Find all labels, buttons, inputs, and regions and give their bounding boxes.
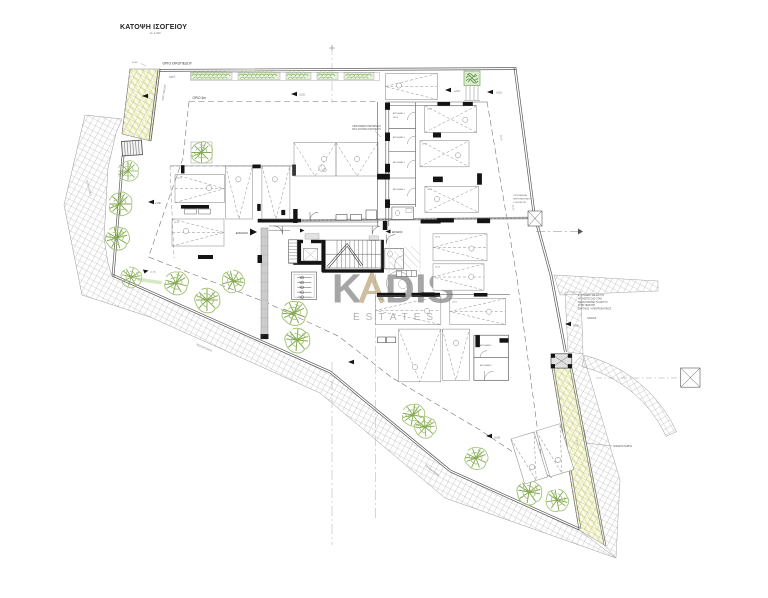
- svg-text:ΑΠΟΘΗΚΗ 2: ΑΠΟΘΗΚΗ 2: [393, 136, 406, 139]
- svg-text:18.00: 18.00: [393, 117, 399, 119]
- svg-text:18.00: 18.00: [427, 189, 433, 191]
- svg-text:ΟΛΟΚΛΗΡΩΘΕΙ ΤΟ ΔΙΚΤΥΟ: ΟΛΟΚΛΗΡΩΘΕΙ ΤΟ ΔΙΚΤΥΟ: [578, 301, 608, 304]
- svg-text:ΑΠΟΘΗΚΗ 5: ΑΠΟΘΗΚΗ 5: [480, 344, 493, 347]
- svg-text:ΟΡΙΟ 3m: ΟΡΙΟ 3m: [193, 96, 207, 100]
- svg-text:ΑΠΟΘΗΚΗ 3: ΑΠΟΘΗΚΗ 3: [393, 161, 406, 164]
- svg-text:ΕΙΣΟΔΟΣ: ΕΙΣΟΔΟΣ: [236, 231, 248, 235]
- svg-text:+2.10: +2.10: [496, 93, 503, 95]
- svg-text:ΣΗΠΤΙΚΟΣ / ΑΠΟΡΡΟΦΗΤΙΚΟΣ: ΣΗΠΤΙΚΟΣ / ΑΠΟΡΡΟΦΗΤΙΚΟΣ: [578, 308, 612, 311]
- svg-text:ΣΥΝΟΡΑ ΟΙΚ.: ΣΥΝΟΡΑ ΟΙΚ.: [513, 201, 527, 204]
- svg-text:ΑΝΟΔΟΣ ΡΑΜΠΑ: ΑΝΟΔΟΣ ΡΑΜΠΑ: [613, 445, 632, 448]
- svg-text:+0.90: +0.90: [573, 326, 580, 328]
- svg-text:18.00: 18.00: [174, 222, 180, 224]
- svg-text:ΑΠΟΘΗΚΗ 6: ΑΠΟΘΗΚΗ 6: [480, 364, 493, 367]
- svg-text:18.00: 18.00: [422, 144, 428, 146]
- svg-text:+0.35: +0.35: [494, 438, 501, 440]
- svg-text:1. ΣΥΝΔΕΣΗ ΜΕ ΔΙΚΤΥΟ: 1. ΣΥΝΔΕΣΗ ΜΕ ΔΙΚΤΥΟ: [578, 294, 604, 297]
- svg-text:ΥΦΙΣΤΑΜΕΝΗ: ΥΦΙΣΤΑΜΕΝΗ: [513, 194, 528, 197]
- svg-text:ΑΠΟΧΕΤΕΥΣΗΣ ΟΤΑΝ: ΑΠΟΧΕΤΕΥΣΗΣ ΟΤΑΝ: [578, 297, 602, 300]
- svg-text:18.00: 18.00: [452, 301, 458, 303]
- svg-text:18.00: 18.00: [435, 267, 441, 269]
- svg-text:ΛΑΚΚΟΣ: ΛΑΚΚΟΣ: [587, 317, 597, 320]
- svg-text:ΑΠΟ ΣΥΝΟΡΑ ΟΙΚΟΠΕΔΟΥ: ΑΠΟ ΣΥΝΟΡΑ ΟΙΚΟΠΕΔΟΥ: [352, 128, 381, 131]
- svg-text:18.00: 18.00: [427, 109, 433, 111]
- svg-text:ΑΠΟΘΗΚΗ 4: ΑΠΟΘΗΚΗ 4: [393, 188, 406, 191]
- svg-text:+1.80: +1.80: [155, 203, 162, 205]
- svg-text:+1.50: +1.50: [150, 272, 156, 274]
- svg-text:18.00: 18.00: [435, 237, 441, 239]
- svg-text:ΚΑΤΟΨΗ ΙΣΟΓΕΙΟΥ: ΚΑΤΟΨΗ ΙΣΟΓΕΙΟΥ: [120, 24, 187, 31]
- svg-text:ΟΡΙΟ ΟΙΚΟΠΕΔΟΥ: ΟΡΙΟ ΟΙΚΟΠΕΔΟΥ: [163, 62, 193, 66]
- svg-text:ΕΙΣΟΔΟΣ: ΕΙΣΟΔΟΣ: [392, 231, 403, 234]
- svg-text:ΑΠΟΘΗΚΗ 1: ΑΠΟΘΗΚΗ 1: [393, 112, 406, 115]
- svg-text:ΣΤΗΝ ΠΕΡΙΟΧΗ: ΣΤΗΝ ΠΕΡΙΟΧΗ: [578, 305, 595, 307]
- svg-text:κλ. 1:100: κλ. 1:100: [150, 31, 161, 35]
- svg-text:+2.10: +2.10: [454, 91, 461, 93]
- svg-text:30.00: 30.00: [132, 62, 138, 64]
- svg-text:18.00: 18.00: [177, 178, 183, 180]
- svg-text:+2.10: +2.10: [299, 95, 306, 97]
- svg-text:ΥΦΙΣΤΑΜΕΝΗ ΠΕΡΙΦΡΑΞΗ: ΥΦΙΣΤΑΜΕΝΗ ΠΕΡΙΦΡΑΞΗ: [352, 125, 381, 128]
- svg-text:18.00: 18.00: [378, 299, 384, 301]
- svg-text:ΠΕΡΙΦΡΑΞΗ ΑΠΟ: ΠΕΡΙΦΡΑΞΗ ΑΠΟ: [513, 197, 531, 200]
